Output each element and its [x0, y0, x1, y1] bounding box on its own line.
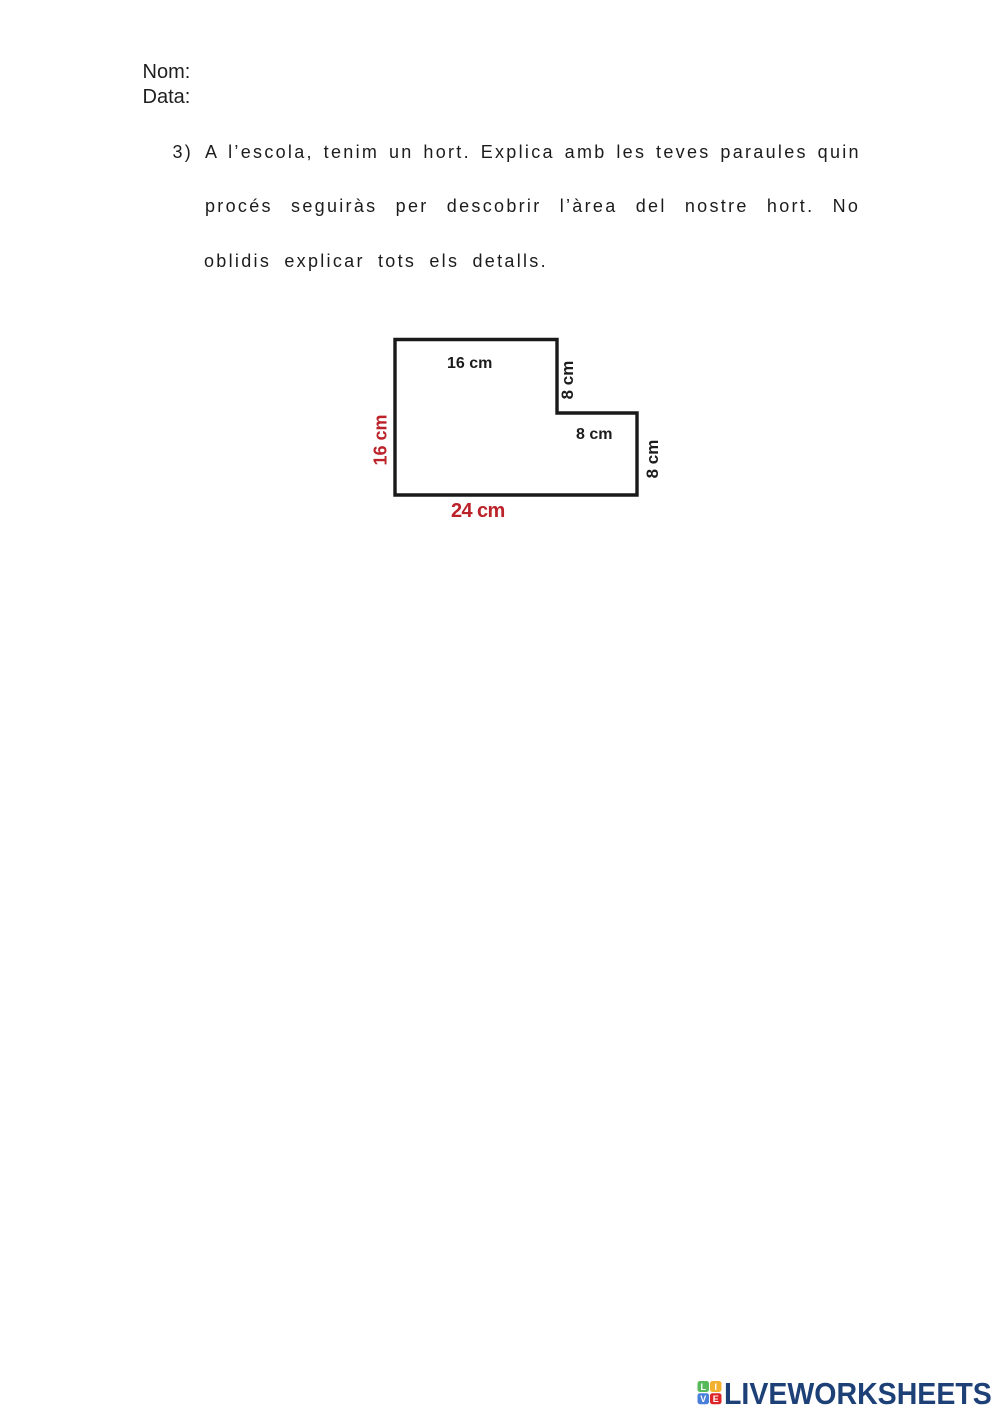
svg-text:L: L [700, 1382, 706, 1392]
svg-text:E: E [713, 1394, 719, 1404]
svg-text:V: V [700, 1394, 706, 1404]
svg-text:I: I [714, 1382, 717, 1392]
